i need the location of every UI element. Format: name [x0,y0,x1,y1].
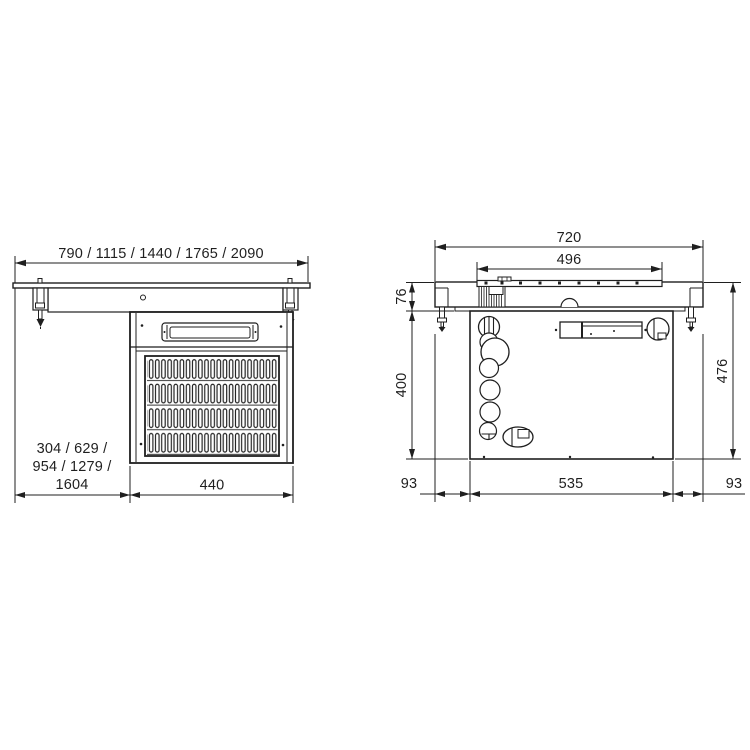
side-view: 720 496 [394,230,745,502]
unit-tub [48,288,283,312]
base-screw-1 [483,456,485,458]
screw-top-left [141,324,144,327]
dim-label-housing-depth: 535 [559,476,584,492]
pipe-circle-valve [480,423,497,440]
dim-label-front-widths: 790 / 1115 / 1440 / 1765 / 2090 [58,246,264,262]
pipe-circle-4 [480,380,500,400]
dim-label-cutout-3: 1604 [55,477,88,493]
grille-slats [147,358,278,456]
ventilation-grille [145,356,279,456]
dim-housing-height: 400 [394,311,468,459]
dim-label-rear-offset: 93 [726,476,743,492]
technical-drawing-page: 790 / 1115 / 1440 / 1765 / 2090 [0,0,750,750]
mounting-flange [13,283,310,288]
compressor [503,427,533,447]
pipe-circle-5 [480,402,500,422]
dim-label-front-offset: 93 [401,476,418,492]
dim-label-housing-width: 440 [200,478,225,494]
screw-top-right [280,325,283,328]
pipe-circle-3 [480,359,499,378]
screw-bottom-right [282,444,285,447]
clamp-bolt-top-left [38,279,42,284]
machine-housing [130,312,293,463]
control-panel-recess [162,323,258,341]
dim-label-cutout-depth: 496 [557,252,582,268]
side-clamp-right [687,307,696,332]
fan-circle-right [647,318,669,340]
front-view: 790 / 1115 / 1440 / 1765 / 2090 [13,246,310,503]
dim-label-cutout-2: 954 / 1279 / [33,459,113,475]
housing-body-side [470,311,673,459]
dim-label-overall-depth: 720 [557,230,582,246]
dim-label-overall-height: 476 [715,359,731,384]
screw-bottom-left [140,443,143,446]
base-screw-3 [652,456,654,458]
base-screw-2 [569,456,571,458]
dim-label-cutout-1: 304 / 629 / [37,441,108,457]
panel-side [555,322,647,338]
dim-label-housing-height: 400 [394,373,410,398]
clamp-bolt-top-right [288,279,292,284]
fixing-clamp-left [33,288,48,329]
drawing-svg: 790 / 1115 / 1440 / 1765 / 2090 [0,0,750,750]
dim-cutout-depth: 496 [477,252,662,280]
dim-label-counter-thickness: 76 [394,288,410,305]
